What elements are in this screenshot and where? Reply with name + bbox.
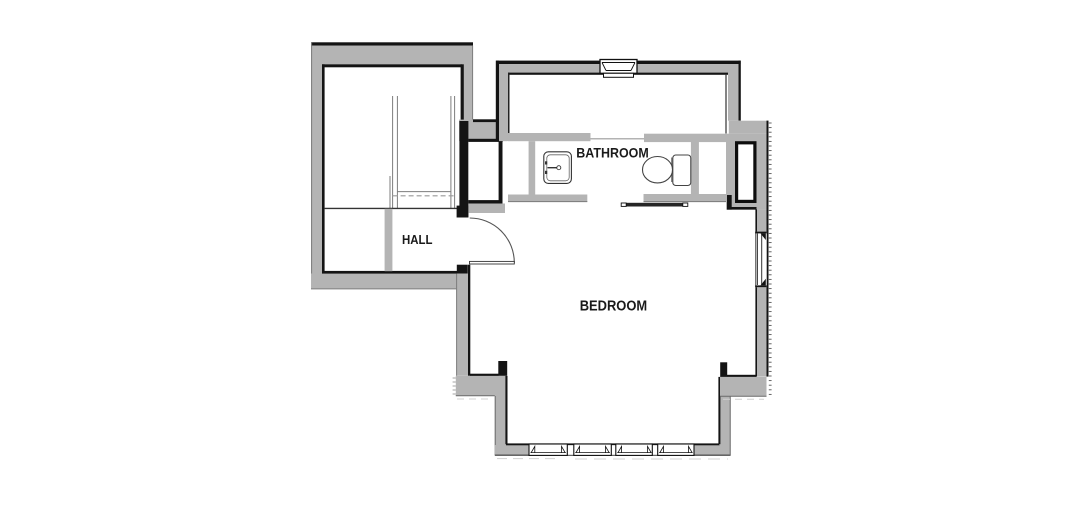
svg-text:BATHROOM: BATHROOM [576,145,648,161]
svg-text:HALL: HALL [402,233,433,247]
svg-text:BEDROOM: BEDROOM [580,299,648,315]
